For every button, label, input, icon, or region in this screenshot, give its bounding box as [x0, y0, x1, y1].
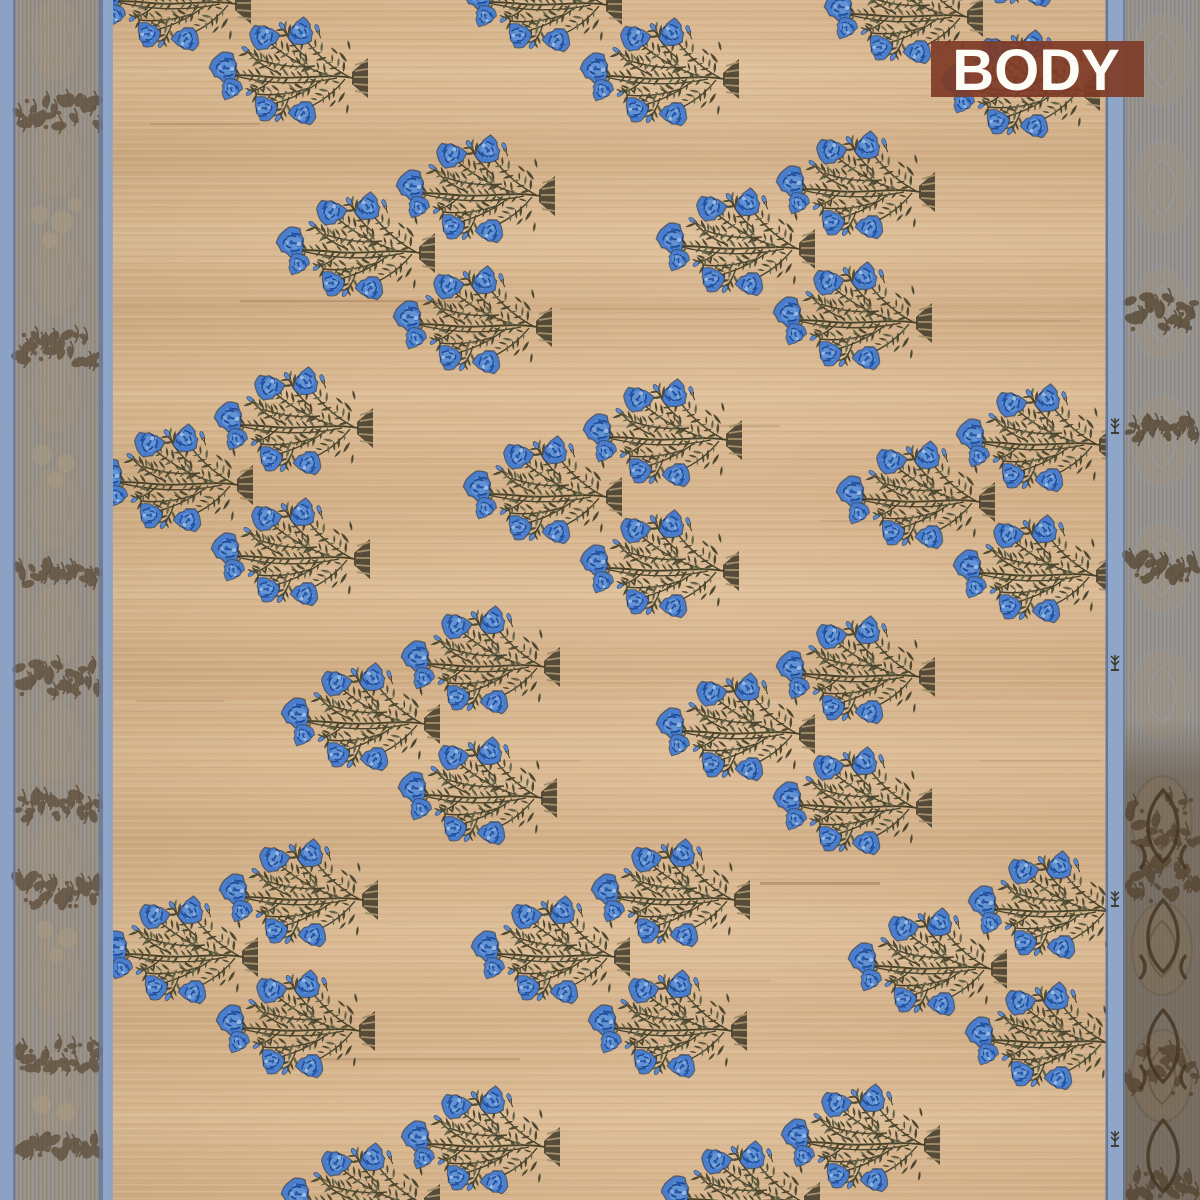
svg-text:BODY: BODY — [952, 38, 1120, 103]
